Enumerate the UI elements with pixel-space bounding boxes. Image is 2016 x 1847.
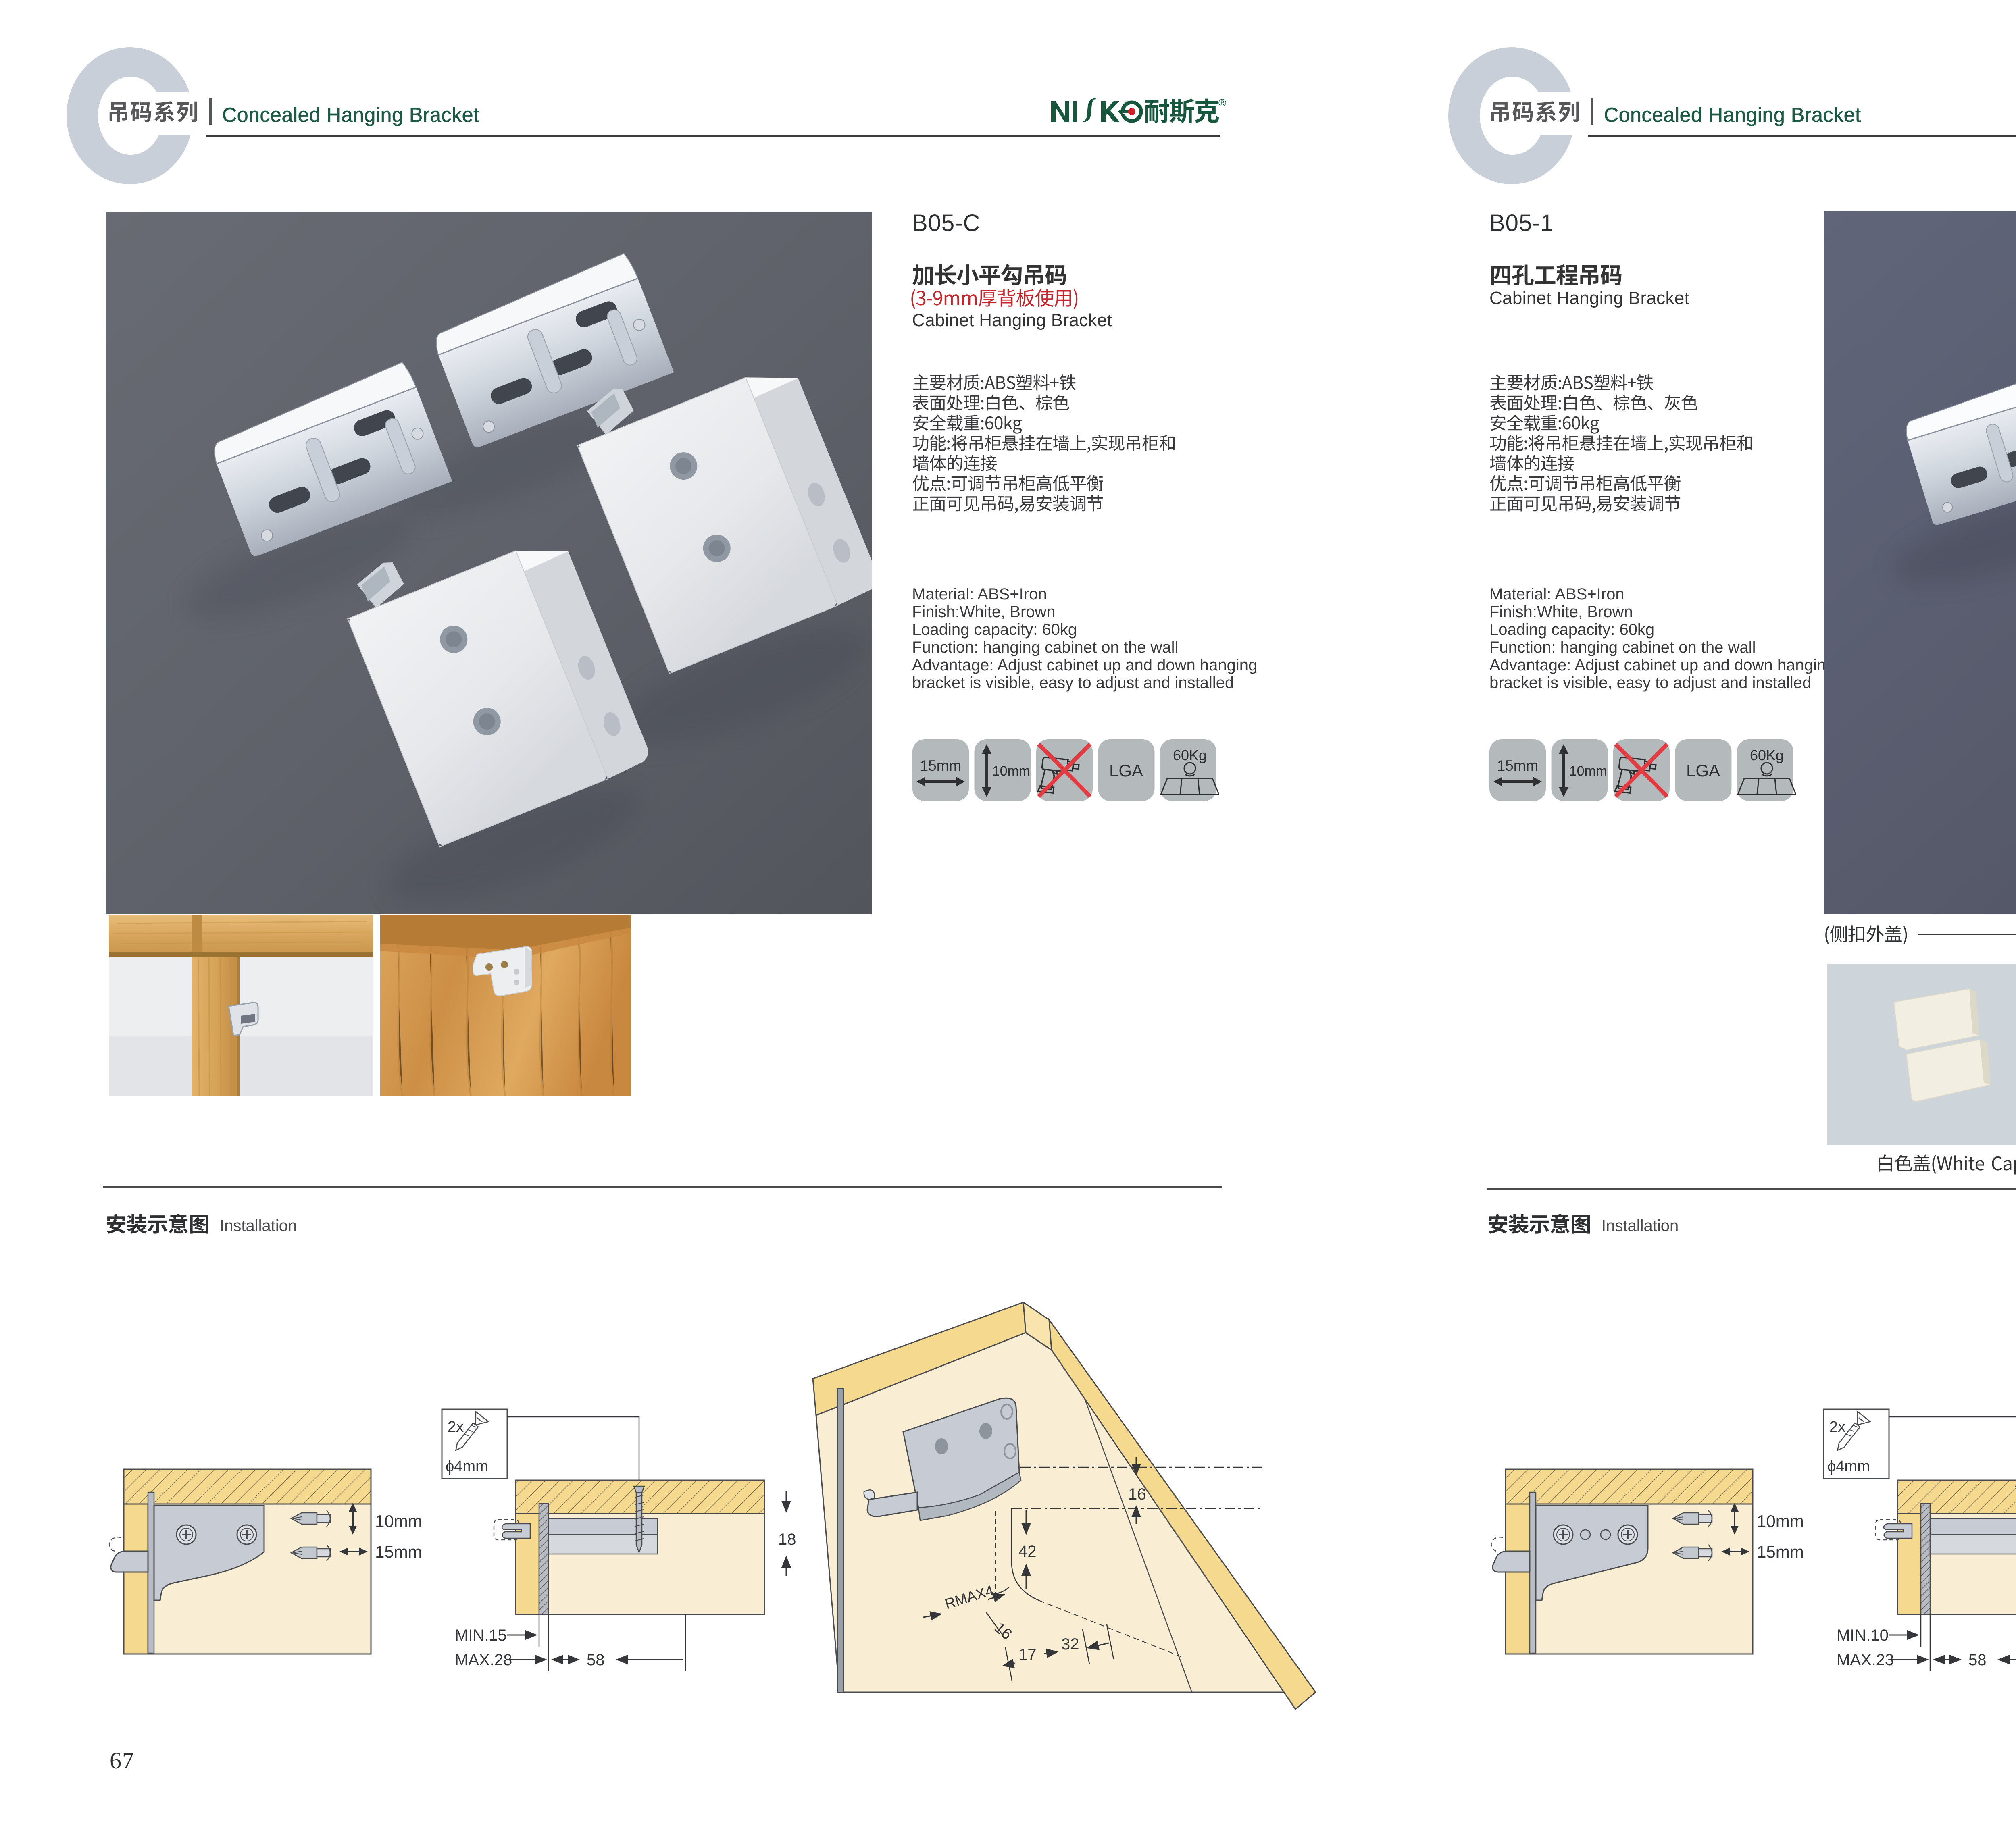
svg-text:15mm: 15mm xyxy=(1497,757,1539,774)
svg-text:15mm: 15mm xyxy=(920,757,962,774)
svg-text:18: 18 xyxy=(778,1531,796,1548)
svg-text:10mm: 10mm xyxy=(1757,1512,1804,1531)
svg-text:15mm: 15mm xyxy=(1757,1542,1804,1561)
svg-text:MAX.23: MAX.23 xyxy=(1837,1651,1894,1669)
svg-text:60Kg: 60Kg xyxy=(1173,747,1207,763)
svg-text:MIN.15: MIN.15 xyxy=(455,1627,507,1644)
svg-text:10mm: 10mm xyxy=(992,763,1030,779)
svg-text:2x: 2x xyxy=(1829,1419,1845,1435)
svg-text:LGA: LGA xyxy=(1109,761,1143,780)
svg-text:LGA: LGA xyxy=(1686,761,1720,780)
svg-text:10mm: 10mm xyxy=(1569,763,1607,779)
svg-text:15mm: 15mm xyxy=(375,1542,422,1561)
svg-text:58: 58 xyxy=(1968,1651,1987,1669)
svg-text:2x: 2x xyxy=(448,1419,464,1435)
svg-text:32: 32 xyxy=(1061,1635,1079,1653)
svg-text:17: 17 xyxy=(1018,1646,1037,1664)
svg-text:MAX.28: MAX.28 xyxy=(455,1651,512,1669)
svg-text:MIN.10: MIN.10 xyxy=(1837,1627,1889,1644)
svg-text:16: 16 xyxy=(1128,1485,1146,1503)
svg-text:ϕ4mm: ϕ4mm xyxy=(446,1458,488,1475)
svg-text:10mm: 10mm xyxy=(375,1512,422,1531)
svg-text:42: 42 xyxy=(1018,1543,1037,1560)
svg-text:58: 58 xyxy=(587,1651,605,1669)
svg-text:60Kg: 60Kg xyxy=(1750,747,1784,763)
svg-text:ϕ4mm: ϕ4mm xyxy=(1827,1458,1870,1475)
